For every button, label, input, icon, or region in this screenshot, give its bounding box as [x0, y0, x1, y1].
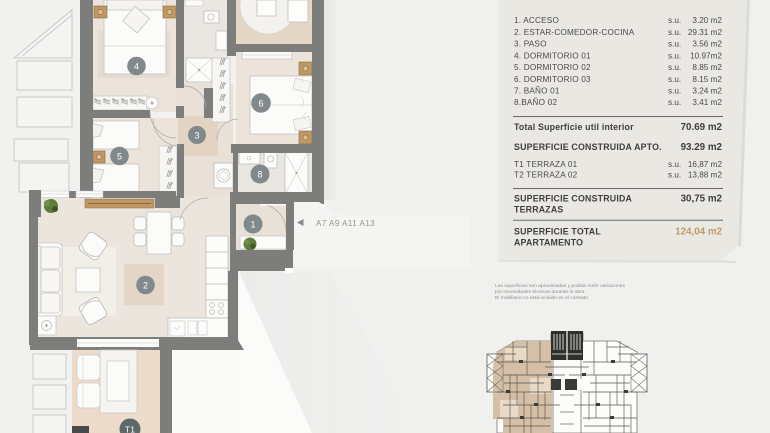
- svg-text:T1 TERRAZA 01: T1 TERRAZA 01: [514, 160, 578, 169]
- svg-text:TERRAZAS: TERRAZAS: [514, 205, 564, 215]
- svg-text:13,88 m2: 13,88 m2: [688, 170, 723, 179]
- svg-text:7. BAÑO 01: 7. BAÑO 01: [514, 86, 560, 96]
- svg-text:s.u.: s.u.: [668, 63, 681, 72]
- svg-text:1: 1: [250, 219, 255, 229]
- svg-text:s.u.: s.u.: [668, 16, 681, 25]
- svg-text:4: 4: [134, 61, 139, 71]
- svg-text:5: 5: [117, 151, 122, 161]
- svg-text:8.85 m2: 8.85 m2: [692, 63, 722, 72]
- svg-text:8.15 m2: 8.15 m2: [692, 75, 722, 84]
- svg-text:s.u.: s.u.: [668, 28, 681, 37]
- svg-text:s.u.: s.u.: [668, 40, 681, 49]
- svg-text:APARTAMENTO: APARTAMENTO: [514, 238, 583, 248]
- svg-text:3: 3: [194, 130, 199, 140]
- svg-text:1. ACCESO: 1. ACCESO: [514, 16, 559, 25]
- svg-text:10.97m2: 10.97m2: [690, 51, 722, 60]
- svg-text:s.u.: s.u.: [668, 75, 681, 84]
- svg-text:A7 A9 A11 A13: A7 A9 A11 A13: [316, 219, 375, 228]
- svg-text:Las superficies son aproximada: Las superficies son aproximadas y podrán…: [495, 283, 625, 289]
- svg-text:SUPERFICIE CONSTRUIDA APTO.: SUPERFICIE CONSTRUIDA APTO.: [514, 142, 662, 152]
- svg-text:SUPERFICIE TOTAL: SUPERFICIE TOTAL: [514, 227, 601, 237]
- svg-text:por necesidades técnicas duran: por necesidades técnicas durante la obra: [495, 289, 585, 295]
- svg-text:16,87 m2: 16,87 m2: [688, 160, 723, 169]
- svg-text:8.BAÑO 02: 8.BAÑO 02: [514, 97, 557, 107]
- svg-text:3.41 m2: 3.41 m2: [692, 98, 722, 107]
- svg-text:70.69 m2: 70.69 m2: [681, 122, 723, 133]
- svg-text:30,75 m2: 30,75 m2: [681, 194, 723, 205]
- svg-text:SUPERFICIE CONSTRUIDA: SUPERFICIE CONSTRUIDA: [514, 194, 633, 204]
- svg-text:T2 TERRAZA 02: T2 TERRAZA 02: [514, 170, 578, 179]
- svg-text:6. DORMITORIO 03: 6. DORMITORIO 03: [514, 75, 591, 84]
- svg-text:s.u.: s.u.: [668, 170, 681, 179]
- svg-text:8: 8: [257, 169, 262, 179]
- svg-text:93.29 m2: 93.29 m2: [681, 142, 723, 153]
- svg-text:124,04 m2: 124,04 m2: [675, 227, 722, 238]
- svg-text:s.u.: s.u.: [668, 98, 681, 107]
- svg-text:29.31 m2: 29.31 m2: [688, 28, 723, 37]
- svg-text:2. ESTAR-COMEDOR-COCINA: 2. ESTAR-COMEDOR-COCINA: [514, 28, 635, 37]
- svg-text:2: 2: [143, 280, 148, 290]
- svg-text:3.20 m2: 3.20 m2: [692, 16, 722, 25]
- svg-text:El mobiliario no está incluido: El mobiliario no está incluido en el con…: [495, 295, 588, 301]
- svg-text:3.56 m2: 3.56 m2: [692, 40, 722, 49]
- svg-text:s.u.: s.u.: [668, 87, 681, 96]
- svg-text:5. DORMITORIO 02: 5. DORMITORIO 02: [514, 63, 591, 72]
- svg-text:6: 6: [258, 98, 263, 108]
- svg-text:s.u.: s.u.: [668, 51, 681, 60]
- svg-text:4. DORMITORIO 01: 4. DORMITORIO 01: [514, 51, 591, 60]
- svg-text:3.24 m2: 3.24 m2: [692, 87, 722, 96]
- svg-text:s.u.: s.u.: [668, 160, 681, 169]
- svg-text:Total Superficie util interior: Total Superficie util interior: [514, 122, 634, 132]
- svg-text:3. PASO: 3. PASO: [514, 40, 547, 49]
- svg-text:T1: T1: [125, 425, 135, 433]
